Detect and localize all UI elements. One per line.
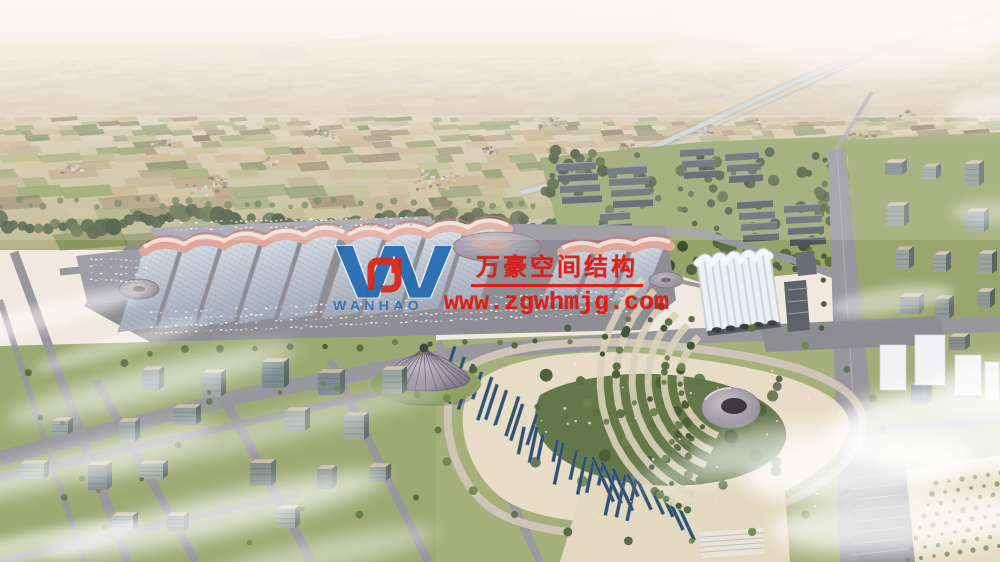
orchard-tree [959,476,964,481]
parked-car [290,305,292,306]
parked-car [295,314,297,315]
terrace-tree [616,409,625,418]
street-tree [602,334,608,340]
city-tree [321,381,326,386]
parked-car [90,279,92,280]
parked-car [150,319,152,320]
parked-car [90,272,92,273]
parked-car [385,323,387,324]
parked-car [150,311,152,312]
city-tree [278,390,282,394]
terrace-tree [677,381,682,386]
parked-car [315,311,317,312]
orchard-tree [906,558,910,562]
parked-car [110,279,112,280]
parked-car [235,307,237,308]
parked-car [100,265,102,266]
parked-car [275,307,277,308]
street-tree [356,344,363,351]
parked-car [415,320,417,321]
parked-car [235,329,237,330]
east-pavilion-center [661,278,671,283]
city-tree [206,398,213,405]
street-tree [427,341,432,346]
parked-car [215,329,217,330]
parked-car [435,321,437,322]
building-side [992,250,997,274]
hall-entrance [740,324,750,330]
parked-car [120,259,122,260]
parked-car [130,273,132,274]
orchard-tree [982,484,986,488]
parked-car [105,258,107,259]
park-edge-tree [469,486,478,495]
plaza-speck [563,407,566,410]
terrace-tree [632,400,637,405]
park-tree [576,376,585,385]
terrace-tree [662,455,669,462]
parked-car [315,326,317,327]
plaza-speck [543,444,545,446]
parked-car [285,306,287,307]
street-tree [392,339,398,345]
building-side [909,246,914,269]
plaza-speck [495,425,498,428]
parked-car [210,309,212,310]
park-tree [534,404,540,410]
parked-car [310,319,312,320]
parked-car [265,328,267,329]
parked-car [220,316,222,317]
city-tree [334,386,341,393]
building-side [340,369,345,395]
parked-car [365,323,367,324]
parked-car [360,316,362,317]
parked-car [220,329,222,330]
street-tree [181,345,189,353]
parked-car [95,259,97,260]
tree [777,265,783,271]
parked-car [190,317,192,318]
parked-car [525,317,527,318]
parked-car [105,279,107,280]
terrace-tree [661,380,666,385]
parked-car [370,316,372,317]
parked-car [135,260,137,261]
city-tree [121,359,129,367]
parked-car [135,267,137,268]
park-edge-tree [434,426,441,433]
parked-car [480,318,482,319]
parked-car [300,327,302,328]
building-side [271,459,276,486]
plaza-speck [696,362,697,363]
park-tree [773,382,782,391]
avenue-tree [821,277,826,282]
plaza-speck [630,501,632,503]
parked-car [420,321,422,322]
parked-car [125,267,127,268]
parked-car [430,321,432,322]
parked-car [295,326,297,327]
parked-car [240,316,242,317]
plaza-speck [807,397,809,399]
parked-car [295,319,297,320]
parked-car [220,323,222,324]
parked-car [210,330,212,331]
street-tree [462,339,468,345]
plaza-speck [679,438,681,440]
terrace-tree [661,362,669,370]
parked-car [175,310,177,311]
parked-car [300,313,302,314]
plaza-speck [574,363,577,366]
park-edge-tree [688,316,694,322]
parked-car [145,274,147,275]
parked-car [245,308,247,309]
parked-car [115,259,117,260]
plaza-speck [717,387,718,388]
parked-car [370,322,372,323]
parked-car [485,319,487,320]
parked-car [290,319,292,320]
crater-mouth [721,398,747,414]
plaza-speck [810,421,811,422]
parked-car [315,304,317,305]
parked-car [140,281,142,282]
parked-car [210,316,212,317]
parked-car [340,317,342,318]
parked-car [450,320,452,321]
parked-car [235,315,237,316]
parked-car [345,323,347,324]
parked-car [185,317,187,318]
annex-building [795,251,817,276]
parked-car [170,318,172,319]
parked-car [360,324,362,325]
parked-car [335,317,337,318]
parked-car [355,324,357,325]
park-tree [563,412,569,418]
atmospheric-haze [0,0,1000,240]
city-tree [61,494,68,501]
parked-car [165,312,167,313]
plaza-speck [616,486,618,488]
city-tree [356,511,364,519]
parked-car [205,317,207,318]
parked-car [145,280,147,281]
parked-car [115,280,117,281]
parked-car [470,318,472,319]
building-side [284,358,289,388]
street-tree [147,351,153,357]
parked-car [240,322,242,323]
logo-wordmark: WANHAO [333,298,423,313]
street-tree [532,338,537,343]
terrace-tree [675,422,683,430]
park-edge-tree [689,538,695,544]
terrace-tree [650,408,658,416]
parked-car [305,319,307,320]
park-edge-tree [443,394,451,402]
park-edge-tree [563,527,572,536]
parked-car [100,259,102,260]
terrace-tree [612,370,620,378]
parked-car [410,320,412,321]
parked-car [185,311,187,312]
parked-car [295,306,297,307]
park-edge-tree [511,511,518,518]
plaza-speck [776,420,778,422]
park-edge-tree [748,324,756,332]
parked-car [305,312,307,313]
terrace-tree [660,325,667,332]
parked-car [310,326,312,327]
parked-car [225,330,227,331]
terrace-tree [616,346,624,354]
parked-car [500,317,502,318]
parked-car [515,317,517,318]
plaza-speck [515,440,516,441]
parked-car [120,281,122,282]
terrace-tree [679,390,685,396]
orchard-tree [944,551,949,556]
plaza-speck [626,491,628,493]
orchard-tree [969,486,973,490]
parked-car [240,329,242,330]
city-tree [140,477,144,481]
parked-car [100,278,102,279]
parked-car [245,315,247,316]
parked-car [200,310,202,311]
aerial-rendering: W WANHAO 万豪空间结构 www.zgwhmjg.com [0,0,1000,562]
street-tree [497,340,503,346]
terrace-tree [665,318,673,326]
terrace-tree [663,496,669,502]
parked-car [255,314,257,315]
park-edge-tree [511,342,517,348]
parked-car [105,273,107,274]
hall-entrance [767,320,777,326]
parked-car [300,306,302,307]
parked-car [280,320,282,321]
terrace-tree [674,444,680,450]
parked-car [265,314,267,315]
parked-car [280,313,282,314]
avenue-tree [821,301,827,307]
park-tree [694,374,705,385]
parked-car [275,320,277,321]
watermark-website: www.zgwhmjg.com [444,288,669,317]
parked-car [440,321,442,322]
parked-car [465,319,467,320]
parked-car [460,318,462,319]
parked-car [125,281,127,282]
parked-car [325,304,327,305]
parked-car [340,324,342,325]
parked-car [205,330,207,331]
park-edge-tree [469,365,477,373]
plaza-speck [588,422,591,425]
orchard-tree [932,554,935,557]
parked-car [405,322,407,323]
parked-car [320,318,322,319]
plaza-speck [575,420,577,422]
park-tree [599,449,611,461]
parked-car [110,266,112,267]
plaza-speck [567,423,569,425]
terrace-tree [682,401,690,409]
parked-car [135,281,137,282]
orchard-tree [919,556,923,560]
parked-car [270,328,272,329]
parked-car [330,318,332,319]
parked-car [215,323,217,324]
parked-car [125,273,127,274]
terrace-tree [669,439,675,445]
terrace-tree [648,317,653,322]
parked-car [95,280,97,281]
parked-car [455,319,457,320]
parked-car [250,314,252,315]
white-tower [880,345,906,390]
parked-car [315,319,317,320]
plaza-speck [771,370,773,372]
terrace-tree [677,363,685,371]
parked-car [195,309,197,310]
terrace-tree [687,342,695,350]
avenue-tree [819,325,825,331]
parked-car [305,325,307,326]
parked-car [330,325,332,326]
parked-car [245,328,247,329]
parked-car [400,322,402,323]
terrace-tree [656,491,664,499]
parked-car [120,266,122,267]
city-tree [96,489,101,494]
park-edge-tree [624,537,633,546]
parked-car [155,311,157,312]
hall-entrance [712,327,722,333]
terrace-tree [684,506,691,513]
parked-car [205,309,207,310]
orchard-tree [958,550,963,555]
plaza-speck [652,458,655,461]
parked-car [285,319,287,320]
tree [677,241,688,252]
orchard-tree [970,547,975,552]
park-tree [583,399,592,408]
parked-car [220,309,222,310]
terrace-tree [700,424,705,429]
plaza-speck [593,512,595,514]
hall-entrance [726,325,736,331]
parked-car [140,267,142,268]
city-tree [247,540,252,545]
parked-car [260,314,262,315]
parked-car [320,304,322,305]
terrace-tree [665,355,670,360]
terrace-tree [676,503,682,509]
parked-car [100,273,102,274]
parked-car [310,311,312,312]
parked-car [140,259,142,260]
plaza-speck [602,513,603,514]
plaza-speck [622,387,624,389]
parked-car [255,308,257,309]
park-tree [540,369,553,382]
parked-car [350,324,352,325]
parked-car [270,314,272,315]
parked-car [280,306,282,307]
plaza-speck [831,408,833,410]
park-edge-tree [843,366,850,373]
park-edge-tree [626,316,632,322]
parked-car [290,313,292,314]
terrace-tree [603,419,609,425]
parked-car [230,329,232,330]
parked-car [205,324,207,325]
park-tree [767,390,778,401]
parked-car [130,260,132,261]
building-side [949,295,954,319]
park-edge-tree [564,325,571,332]
city-tree [413,495,419,501]
plaza-speck [545,431,547,433]
parked-car [145,267,147,268]
parked-car [320,311,322,312]
parked-car [120,274,122,275]
parked-car [305,306,307,307]
parked-car [195,331,197,332]
street-tree [567,339,572,344]
parked-car [215,309,217,310]
city-tree [60,421,65,426]
plaza-speck [541,420,543,422]
terrace-tree [622,326,630,334]
parked-car [310,305,312,306]
parked-car [145,261,147,262]
parked-car [375,322,377,323]
parked-car [110,258,112,259]
parked-car [210,323,212,324]
park-edge-tree [748,528,756,536]
orchard-tree [994,481,999,486]
parked-car [290,327,292,328]
watermark-company-name: 万豪空间结构 [471,254,643,287]
parked-car [155,318,157,319]
parked-car [255,322,257,323]
parked-car [135,274,137,275]
parked-car [115,273,117,274]
parked-car [255,327,257,328]
parked-car [380,322,382,323]
city-tree [25,369,32,376]
parked-car [320,326,322,327]
parked-car [325,326,327,327]
tent-apex [420,344,429,353]
plaza-speck [751,500,753,502]
parked-car [235,323,237,324]
parked-car [375,317,377,318]
parked-car [95,264,97,265]
parked-car [270,307,272,308]
parked-car [355,318,357,319]
park-edge-tree [443,457,452,466]
parked-car [90,258,92,259]
parked-car [325,318,327,319]
parked-car [345,317,347,318]
